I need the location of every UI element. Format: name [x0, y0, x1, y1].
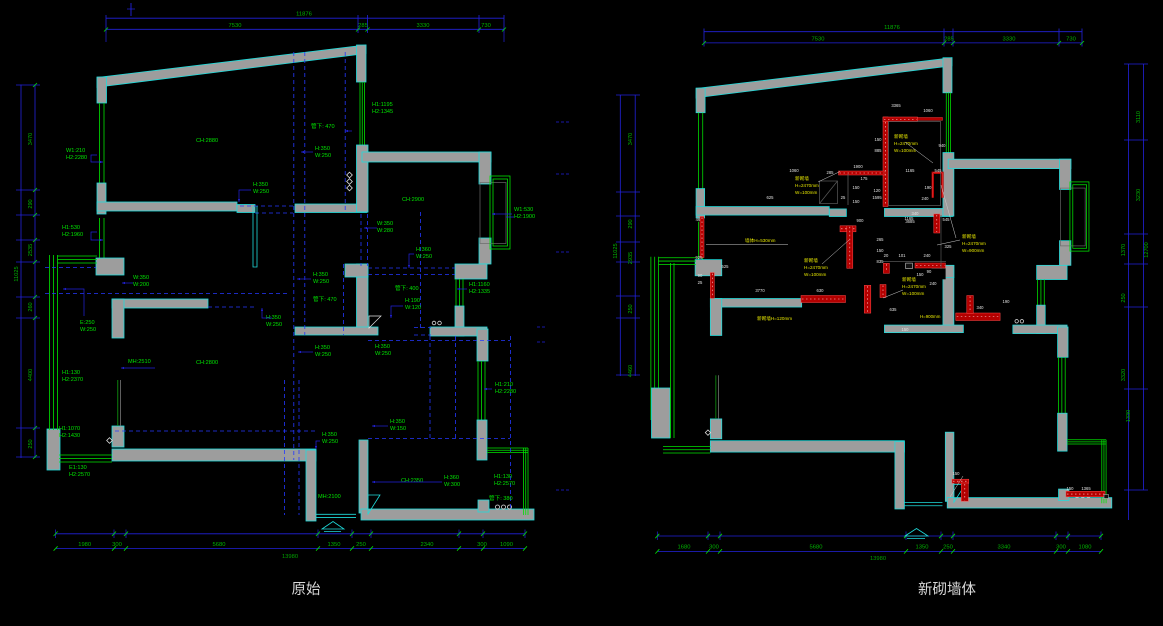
svg-text:250: 250 — [1121, 293, 1127, 302]
svg-text:190: 190 — [1003, 299, 1011, 304]
svg-text:W:200: W:200 — [133, 282, 149, 288]
svg-text:300: 300 — [477, 542, 487, 548]
svg-text:101: 101 — [899, 253, 907, 258]
svg-text:MH:2100: MH:2100 — [318, 494, 341, 500]
svg-text:1595: 1595 — [872, 195, 882, 200]
svg-text:900: 900 — [857, 218, 865, 223]
svg-text:3470: 3470 — [628, 133, 634, 145]
svg-text:190: 190 — [925, 185, 933, 190]
svg-text:1090: 1090 — [500, 542, 513, 548]
svg-text:H:350: H:350 — [313, 272, 328, 278]
svg-text:W=100mm: W=100mm — [804, 272, 827, 277]
svg-text:W:250: W:250 — [416, 254, 432, 260]
svg-text:H2:2280: H2:2280 — [66, 155, 87, 161]
svg-text:1365: 1365 — [1081, 486, 1091, 491]
svg-text:300: 300 — [709, 545, 719, 551]
svg-text:W1:530: W1:530 — [514, 207, 533, 213]
svg-text:W1:210: W1:210 — [66, 148, 85, 154]
svg-text:240: 240 — [924, 253, 932, 258]
svg-text:240: 240 — [922, 196, 930, 201]
svg-text:3470: 3470 — [28, 133, 34, 145]
svg-text:H2:1335: H2:1335 — [469, 289, 490, 295]
svg-text:H:350: H:350 — [375, 344, 390, 350]
svg-text:H2:1345: H2:1345 — [372, 109, 393, 115]
svg-text:120: 120 — [874, 188, 882, 193]
svg-text:25: 25 — [698, 280, 703, 285]
svg-text:13980: 13980 — [870, 556, 886, 562]
svg-text:H=2470mm: H=2470mm — [795, 183, 819, 188]
svg-text:630: 630 — [817, 288, 825, 293]
svg-text:W:300: W:300 — [444, 482, 460, 488]
svg-text:H:350: H:350 — [253, 182, 268, 188]
svg-text:260: 260 — [28, 302, 34, 311]
svg-text:265: 265 — [877, 237, 885, 242]
svg-text:W:280: W:280 — [377, 228, 393, 234]
svg-text:H2:1900: H2:1900 — [514, 214, 535, 220]
svg-text:W=900mm: W=900mm — [962, 248, 985, 253]
svg-text:CH:2900: CH:2900 — [402, 197, 424, 203]
svg-text:1680: 1680 — [678, 545, 691, 551]
svg-text:H2:1960: H2:1960 — [62, 232, 83, 238]
svg-text:635: 635 — [890, 307, 898, 312]
svg-text:150: 150 — [1067, 486, 1075, 491]
svg-text:835: 835 — [877, 259, 885, 264]
svg-text:原始: 原始 — [292, 581, 321, 598]
svg-text:3340: 3340 — [998, 545, 1011, 551]
svg-text:150: 150 — [917, 272, 925, 277]
svg-text:1980: 1980 — [78, 542, 91, 548]
svg-text:CH:2800: CH:2800 — [196, 360, 218, 366]
svg-text:W:250: W:250 — [375, 351, 391, 357]
svg-text:730: 730 — [481, 23, 491, 29]
svg-text:1165: 1165 — [904, 216, 914, 221]
svg-text:3770: 3770 — [755, 288, 765, 293]
svg-text:3330: 3330 — [1003, 37, 1016, 43]
svg-text:5680: 5680 — [213, 542, 226, 548]
svg-text:300: 300 — [1056, 545, 1066, 551]
svg-text:150: 150 — [902, 327, 910, 332]
svg-text:W:350: W:350 — [133, 275, 149, 281]
svg-text:H1:210: H1:210 — [495, 382, 513, 388]
svg-text:1900: 1900 — [853, 164, 863, 169]
svg-text:250: 250 — [356, 542, 366, 548]
svg-text:290: 290 — [628, 219, 634, 228]
svg-text:250: 250 — [28, 439, 34, 448]
svg-text:545: 545 — [943, 217, 951, 222]
svg-text:H:350: H:350 — [315, 345, 330, 351]
svg-text:3320: 3320 — [1121, 369, 1127, 381]
svg-text:885: 885 — [875, 148, 883, 153]
svg-text:11025: 11025 — [613, 243, 619, 258]
svg-text:3365: 3365 — [891, 103, 901, 108]
svg-text:H1:1070: H1:1070 — [59, 426, 80, 432]
svg-text:25: 25 — [841, 195, 846, 200]
svg-text:7530: 7530 — [812, 37, 825, 43]
svg-text:管下: 400: 管下: 400 — [395, 284, 419, 292]
svg-text:管下: 470: 管下: 470 — [311, 122, 335, 130]
svg-text:W:350: W:350 — [377, 221, 393, 227]
svg-text:墙体H=530mm: 墙体H=530mm — [745, 237, 776, 244]
svg-text:1165: 1165 — [905, 168, 915, 173]
svg-text:150: 150 — [853, 199, 861, 204]
svg-text:H=2470mm: H=2470mm — [894, 141, 918, 146]
svg-text:1350: 1350 — [328, 542, 341, 548]
svg-text:W:120: W:120 — [405, 305, 421, 311]
svg-text:CH:2350: CH:2350 — [401, 478, 423, 484]
svg-text:1370: 1370 — [1121, 244, 1127, 256]
svg-text:250: 250 — [943, 545, 953, 551]
svg-text:新砌墙H=120mm: 新砌墙H=120mm — [757, 315, 792, 322]
svg-text:W=100mm: W=100mm — [795, 190, 818, 195]
svg-text:150: 150 — [875, 137, 883, 142]
svg-text:H:190: H:190 — [405, 298, 420, 304]
svg-text:H:360: H:360 — [444, 475, 459, 481]
svg-text:150: 150 — [853, 185, 861, 190]
svg-text:300: 300 — [112, 542, 122, 548]
svg-text:W:250: W:250 — [322, 439, 338, 445]
svg-text:175: 175 — [861, 176, 869, 181]
svg-text:11876: 11876 — [296, 12, 312, 18]
svg-text:H1:130: H1:130 — [62, 370, 80, 376]
svg-text:285: 285 — [827, 170, 835, 175]
svg-text:新砌墙: 新砌墙 — [894, 133, 908, 140]
svg-text:H2:1430: H2:1430 — [59, 433, 80, 439]
svg-text:525: 525 — [722, 264, 730, 269]
svg-text:W=100mm: W=100mm — [894, 148, 917, 153]
svg-text:5680: 5680 — [810, 545, 823, 551]
svg-text:250: 250 — [628, 304, 634, 313]
svg-text:545: 545 — [935, 168, 943, 173]
svg-text:W:250: W:250 — [80, 327, 96, 333]
svg-text:H1:1160: H1:1160 — [469, 282, 490, 288]
svg-text:W:250: W:250 — [253, 189, 269, 195]
svg-text:2535: 2535 — [28, 244, 34, 256]
svg-text:W:250: W:250 — [315, 352, 331, 358]
svg-text:W:250: W:250 — [313, 279, 329, 285]
svg-text:E1:130: E1:130 — [69, 465, 87, 471]
svg-text:4460: 4460 — [628, 365, 634, 377]
svg-text:新砌墙: 新砌墙 — [795, 175, 809, 182]
svg-text:7530: 7530 — [229, 23, 242, 29]
svg-text:1330: 1330 — [1126, 410, 1132, 422]
svg-text:H:350: H:350 — [390, 419, 405, 425]
svg-text:H=900mm: H=900mm — [920, 314, 941, 319]
svg-text:940: 940 — [939, 143, 947, 148]
svg-text:625: 625 — [767, 195, 775, 200]
svg-text:150: 150 — [953, 471, 961, 476]
svg-text:H1:530: H1:530 — [62, 225, 80, 231]
svg-text:H:360: H:360 — [416, 247, 431, 253]
svg-text:20: 20 — [884, 253, 889, 258]
svg-text:H:350: H:350 — [315, 146, 330, 152]
svg-text:H1:130: H1:130 — [494, 474, 512, 480]
svg-text:MH:2510: MH:2510 — [128, 359, 151, 365]
svg-text:1060: 1060 — [789, 168, 799, 173]
svg-text:H=2470mm: H=2470mm — [804, 265, 828, 270]
svg-text:925: 925 — [696, 255, 704, 260]
svg-text:1080: 1080 — [1079, 545, 1092, 551]
svg-text:12700: 12700 — [1144, 242, 1150, 258]
svg-text:W:250: W:250 — [315, 153, 331, 159]
svg-text:CH:2880: CH:2880 — [196, 138, 218, 144]
svg-text:H=2470mm: H=2470mm — [902, 284, 926, 289]
svg-text:46: 46 — [696, 217, 701, 222]
svg-text:W=100mm: W=100mm — [902, 291, 925, 296]
svg-text:管下: 470: 管下: 470 — [313, 295, 337, 303]
svg-text:1060: 1060 — [923, 108, 933, 113]
svg-text:90: 90 — [698, 273, 703, 278]
svg-text:325: 325 — [945, 244, 953, 249]
svg-text:3230: 3230 — [1136, 189, 1142, 201]
svg-text:11876: 11876 — [884, 25, 900, 31]
svg-text:新砌墙: 新砌墙 — [962, 233, 976, 240]
svg-text:1350: 1350 — [916, 545, 929, 551]
svg-text:E:250: E:250 — [80, 320, 95, 326]
svg-text:90: 90 — [927, 269, 932, 274]
svg-text:W:250: W:250 — [266, 322, 282, 328]
svg-text:240: 240 — [930, 281, 938, 286]
svg-text:W:150: W:150 — [390, 426, 406, 432]
svg-text:H:350: H:350 — [322, 432, 337, 438]
svg-text:新砌墙: 新砌墙 — [902, 276, 916, 283]
svg-text:290: 290 — [28, 199, 34, 208]
svg-text:管下: 380: 管下: 380 — [489, 494, 513, 502]
svg-text:285: 285 — [944, 37, 954, 43]
svg-text:11025: 11025 — [14, 266, 20, 281]
svg-text:13980: 13980 — [282, 554, 298, 560]
svg-text:2340: 2340 — [421, 542, 434, 548]
svg-text:3330: 3330 — [417, 23, 430, 29]
svg-text:H=2470mm: H=2470mm — [962, 241, 986, 246]
svg-text:H2:2370: H2:2370 — [62, 377, 83, 383]
svg-text:新砌墙体: 新砌墙体 — [918, 581, 976, 598]
svg-text:2935: 2935 — [628, 252, 634, 264]
svg-text:新砌墙: 新砌墙 — [804, 257, 818, 264]
svg-text:H2:2280: H2:2280 — [495, 389, 516, 395]
svg-text:730: 730 — [1066, 37, 1076, 43]
svg-text:285: 285 — [358, 23, 368, 29]
svg-text:4400: 4400 — [28, 369, 34, 381]
svg-text:H1:1195: H1:1195 — [372, 102, 393, 108]
svg-text:3110: 3110 — [1136, 111, 1142, 123]
svg-text:H2:2570: H2:2570 — [69, 472, 90, 478]
svg-text:340: 340 — [977, 305, 985, 310]
svg-text:H2:2570: H2:2570 — [494, 481, 515, 487]
